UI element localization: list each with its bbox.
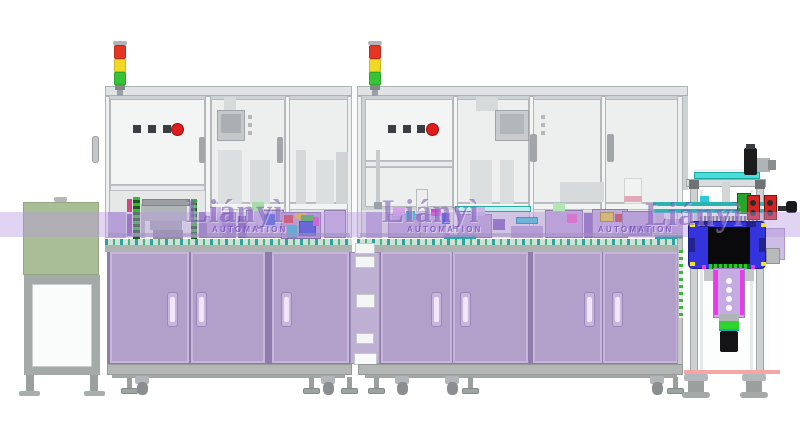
watermark-layer: LiányìAUTOMATIONLiányìAUTOMATIONLiányìAU… bbox=[0, 0, 800, 438]
machine-render-scene: LiányìAUTOMATIONLiányìAUTOMATIONLiányìAU… bbox=[0, 0, 800, 438]
watermark-subtitle: AUTOMATION bbox=[212, 226, 287, 234]
watermark-subtitle: AUTOMATION bbox=[598, 226, 673, 234]
watermark-subtitle: AUTOMATION bbox=[407, 226, 482, 234]
